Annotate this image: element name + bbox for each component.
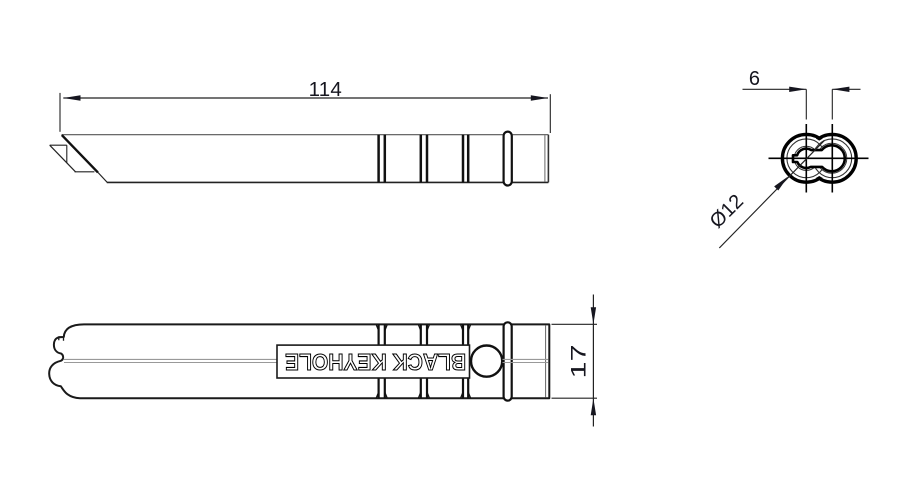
svg-text:17: 17 xyxy=(568,345,591,379)
svg-text:114: 114 xyxy=(309,78,342,101)
svg-text:6: 6 xyxy=(749,68,760,90)
svg-text:BLACK KEYHOLE: BLACK KEYHOLE xyxy=(285,349,466,375)
